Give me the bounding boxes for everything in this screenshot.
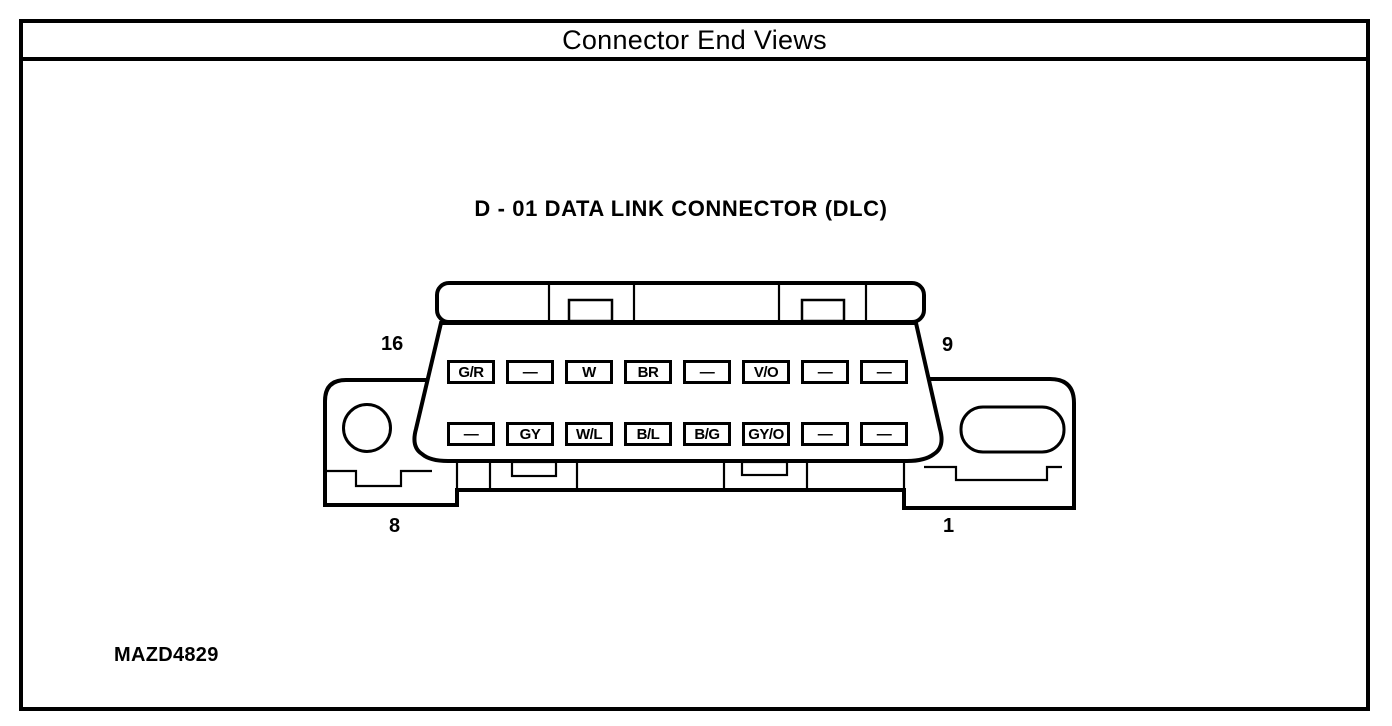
pin-number-8: 8: [389, 515, 400, 538]
left-ear-hole: [344, 405, 391, 452]
pin-box: V/O: [742, 360, 790, 384]
pin-wire-color-label: —: [523, 364, 538, 381]
pin-wire-color-label: W: [582, 364, 596, 381]
pin-wire-color-label: G/R: [458, 364, 483, 381]
page-frame: Connector End Views: [19, 19, 1370, 711]
pin-wire-color-label: W/L: [576, 426, 602, 443]
flange-notch: [512, 462, 556, 476]
pin-wire-color-label: —: [700, 364, 715, 381]
pin-row-top: G/R—WBR—V/O——: [447, 360, 908, 384]
pin-box: B/L: [624, 422, 672, 446]
connector-cap: [437, 283, 924, 322]
pin-wire-color-label: —: [818, 426, 833, 443]
pin-number-1: 1: [943, 515, 954, 538]
pin-box: W/L: [565, 422, 613, 446]
right-ear-step-line: [924, 467, 1062, 480]
pin-box: —: [801, 422, 849, 446]
pin-box: BR: [624, 360, 672, 384]
pin-box: —: [506, 360, 554, 384]
pin-box: —: [683, 360, 731, 384]
pin-box: —: [860, 360, 908, 384]
pin-box: GY: [506, 422, 554, 446]
flange-notch: [742, 462, 787, 475]
pin-box: —: [447, 422, 495, 446]
pin-number-9: 9: [942, 334, 953, 357]
pin-box: GY/O: [742, 422, 790, 446]
connector-title: D - 01 DATA LINK CONNECTOR (DLC): [474, 196, 887, 222]
pin-wire-color-label: BR: [638, 364, 659, 381]
figure-id: MAZD4829: [114, 644, 219, 667]
pin-row-bottom: —GYW/LB/LB/GGY/O——: [447, 422, 908, 446]
pin-box: G/R: [447, 360, 495, 384]
right-ear-hole: [961, 407, 1064, 452]
pin-number-16: 16: [381, 333, 403, 356]
pin-box: —: [860, 422, 908, 446]
left-ear-step-line: [325, 471, 432, 486]
pin-wire-color-label: —: [818, 364, 833, 381]
pin-wire-color-label: —: [877, 426, 892, 443]
pin-wire-color-label: B/G: [694, 426, 719, 443]
pin-box: —: [801, 360, 849, 384]
pin-wire-color-label: GY: [520, 426, 541, 443]
pin-box: B/G: [683, 422, 731, 446]
pin-wire-color-label: B/L: [637, 426, 660, 443]
pin-wire-color-label: —: [877, 364, 892, 381]
pin-wire-color-label: V/O: [754, 364, 778, 381]
pin-wire-color-label: —: [464, 426, 479, 443]
manual-page: Connector End Views: [0, 0, 1392, 726]
pin-box: W: [565, 360, 613, 384]
pin-wire-color-label: GY/O: [748, 426, 784, 443]
